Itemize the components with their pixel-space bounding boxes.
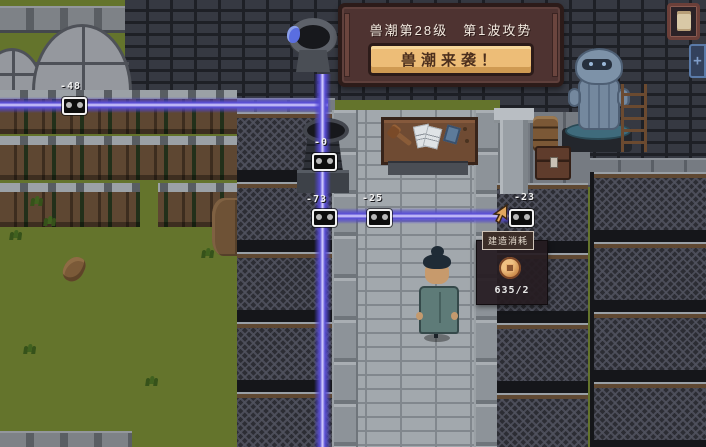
wooden-chest[interactable] <box>535 146 571 180</box>
stone-wall-band-bottom <box>0 431 132 447</box>
damage-number: -0 <box>314 137 328 148</box>
pagoda-complex-far-right <box>590 172 706 447</box>
character-robe <box>419 286 459 334</box>
tooltip-header: 建造消耗 <box>482 231 534 250</box>
villager-character[interactable] <box>412 246 462 344</box>
game-cursor-arrow <box>488 204 508 224</box>
well-base <box>296 50 330 72</box>
table-front <box>388 161 468 175</box>
character-hand-right <box>451 312 458 320</box>
fence-gap <box>140 181 158 228</box>
robot-eye-right <box>602 62 606 66</box>
plus-panel-icon[interactable]: + <box>689 44 706 78</box>
damage-number: -23 <box>514 192 535 203</box>
damage-number: -48 <box>60 81 81 92</box>
damage-number: -25 <box>362 193 383 204</box>
scroll-icon <box>677 11 691 31</box>
robot-torso <box>578 78 620 130</box>
dirt-patch <box>212 198 238 256</box>
cost-value: 635/2 <box>477 285 547 296</box>
laser-beam-horizontal-top <box>0 97 328 113</box>
scroll-menu-button[interactable] <box>667 3 700 40</box>
robot-visor <box>582 59 612 70</box>
palisade-fence-row-2 <box>0 143 237 180</box>
game-viewport: -48 -0 -73 -25 -23 兽潮第28级 第1波攻势 兽潮来袭！ 建造… <box>0 0 706 447</box>
wave-start-button[interactable]: 兽潮来袭！ <box>368 43 534 76</box>
ladder <box>621 84 647 152</box>
beam-projectile-icon[interactable] <box>509 209 534 227</box>
wave-banner: 兽潮第28级 第1波攻势 兽潮来袭！ <box>338 3 564 87</box>
beam-projectile-icon[interactable] <box>367 209 392 227</box>
crafting-table[interactable] <box>381 117 478 177</box>
chest-clasp <box>550 157 558 168</box>
character-hand-left <box>416 312 423 320</box>
laser-beam-vertical <box>314 74 331 447</box>
build-cost-tooltip: 建造消耗 635/2 <box>476 240 548 305</box>
robot-arm-left <box>568 88 581 107</box>
robot-eye-left <box>589 62 593 66</box>
crumb <box>463 127 467 131</box>
beam-projectile-icon[interactable] <box>312 209 337 227</box>
well-tower[interactable] <box>289 16 337 78</box>
coin-icon <box>499 257 521 279</box>
wave-title: 兽潮第28级 第1波攻势 <box>342 20 560 39</box>
character-hair-bun <box>431 246 444 257</box>
beam-projectile-icon[interactable] <box>62 97 87 115</box>
stone-pillar-prop <box>494 108 534 194</box>
beam-projectile-icon[interactable] <box>312 153 337 171</box>
damage-number: -73 <box>306 194 327 205</box>
crumb-2 <box>465 139 469 143</box>
